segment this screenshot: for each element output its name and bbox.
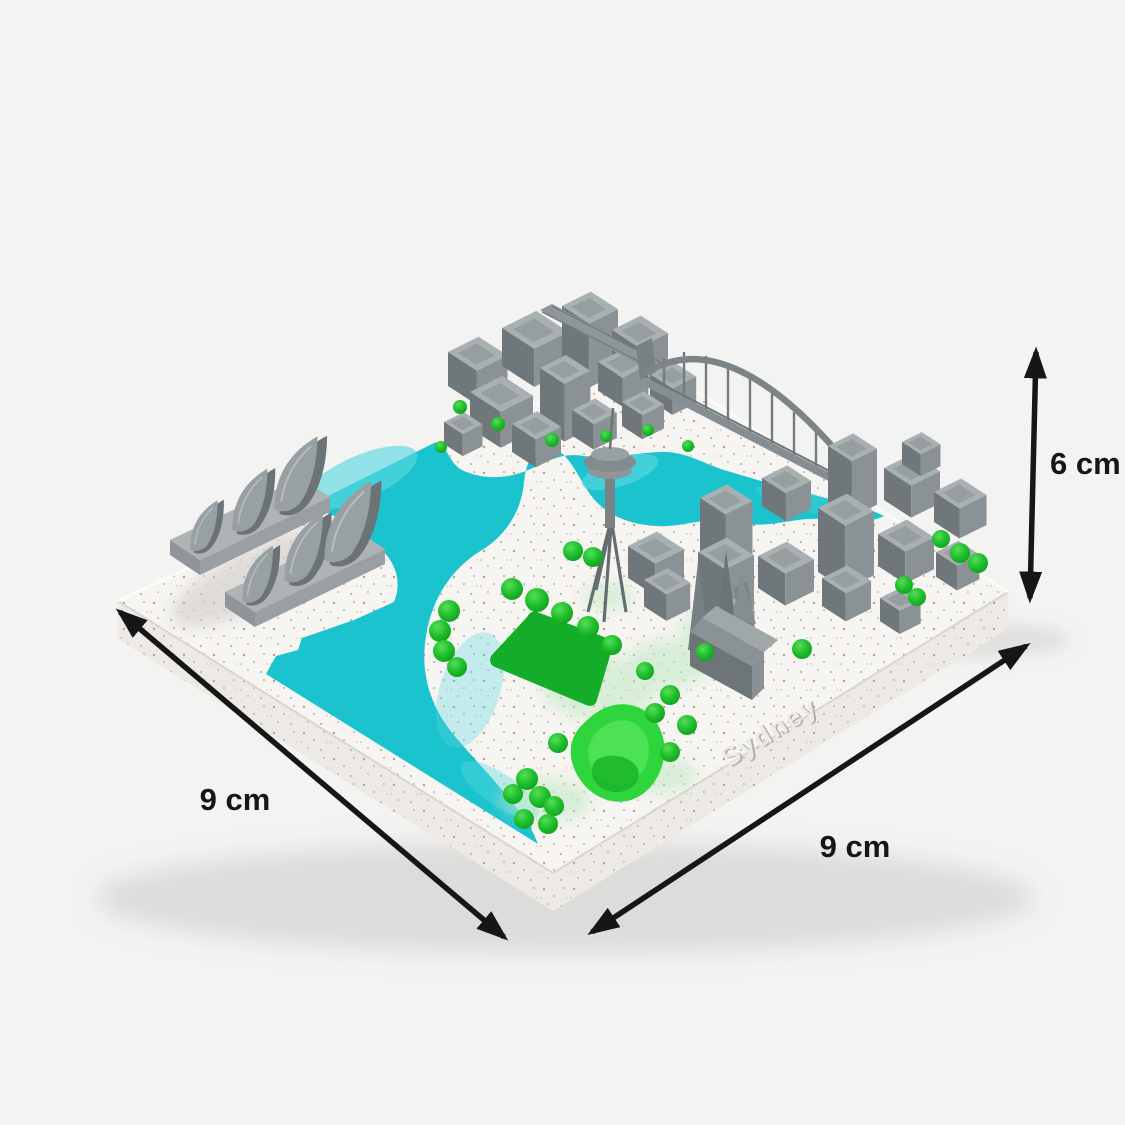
tree <box>503 784 523 804</box>
tree <box>660 742 680 762</box>
tree <box>682 440 694 452</box>
tree <box>491 417 505 431</box>
tree <box>968 553 988 573</box>
tree <box>551 602 573 624</box>
tree <box>602 635 622 655</box>
tree <box>514 809 534 829</box>
height-dimension-label: 6 cm <box>1050 446 1121 481</box>
tree <box>545 433 559 447</box>
tree <box>636 662 654 680</box>
tree <box>501 578 523 600</box>
tree <box>544 796 564 816</box>
tree <box>932 530 950 548</box>
tree <box>583 547 603 567</box>
tree <box>447 657 467 677</box>
tree <box>525 588 549 612</box>
tree <box>435 441 447 453</box>
tree <box>950 543 970 563</box>
tree <box>642 424 654 436</box>
product-photo: Sydney Sydney 9 cm 9 cm 6 cm <box>0 0 1125 1125</box>
tree <box>792 639 812 659</box>
tree <box>660 685 680 705</box>
tree <box>438 600 460 622</box>
tree <box>538 814 558 834</box>
tree <box>600 430 612 442</box>
tree <box>453 400 467 414</box>
tree <box>908 588 926 606</box>
scene-svg: Sydney Sydney 9 cm 9 cm 6 cm <box>0 0 1125 1125</box>
tree <box>563 541 583 561</box>
width-dimension-label: 9 cm <box>200 782 271 817</box>
tree <box>696 643 714 661</box>
tree <box>645 703 665 723</box>
tree <box>677 715 697 735</box>
tree <box>429 620 451 642</box>
tree <box>577 616 599 638</box>
depth-dimension-label: 9 cm <box>820 829 891 864</box>
tree <box>548 733 568 753</box>
